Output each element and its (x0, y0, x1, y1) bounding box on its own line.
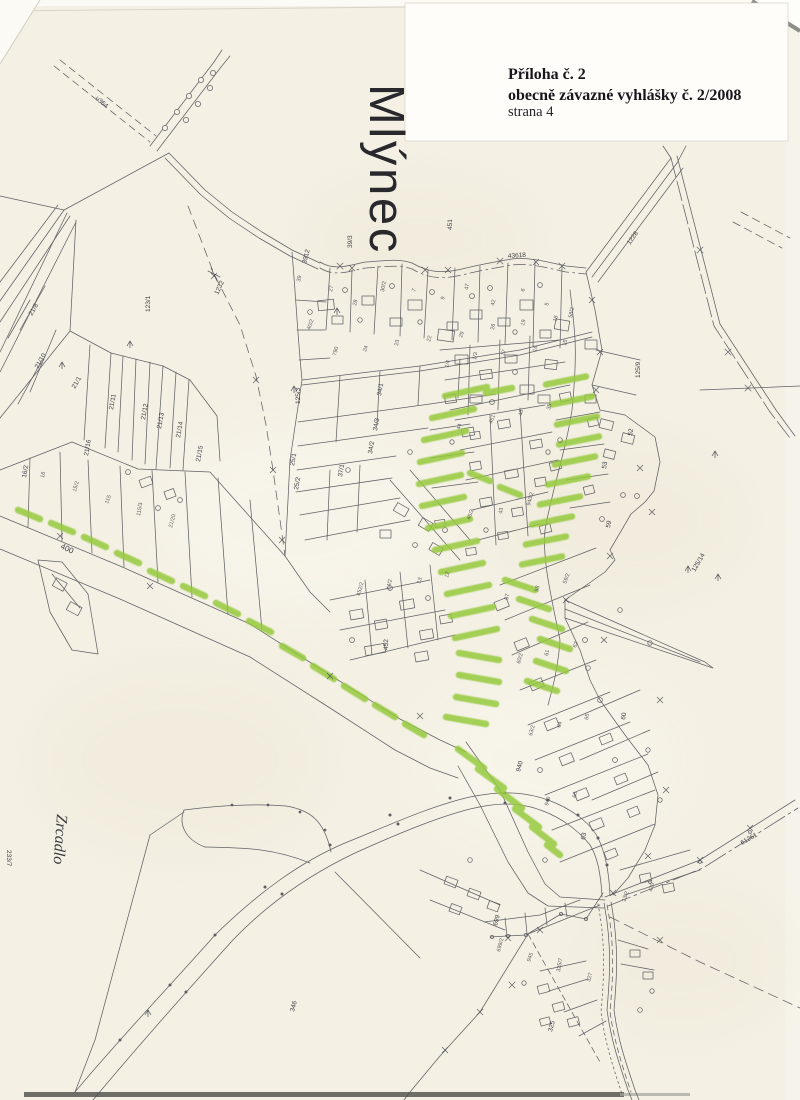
svg-text:26: 26 (490, 323, 497, 330)
svg-text:233/7: 233/7 (5, 850, 12, 867)
svg-text:57: 57 (504, 593, 511, 600)
svg-text:Příloha č. 2: Příloha č. 2 (508, 66, 586, 83)
svg-text:16: 16 (40, 471, 47, 478)
svg-text:strana 4: strana 4 (508, 104, 554, 120)
svg-text:23: 23 (394, 339, 401, 346)
svg-text:39/3: 39/3 (347, 235, 354, 248)
svg-text:Mlýnec: Mlýnec (359, 84, 413, 255)
svg-text:451: 451 (447, 219, 454, 230)
svg-text:Zrcadlo: Zrcadlo (50, 814, 70, 865)
svg-text:43618: 43618 (508, 252, 527, 260)
svg-text:61: 61 (544, 649, 551, 656)
svg-text:47: 47 (464, 283, 471, 290)
svg-text:452: 452 (383, 639, 390, 650)
svg-text:43: 43 (498, 507, 505, 514)
svg-text:66: 66 (572, 791, 579, 798)
svg-text:125/9: 125/9 (635, 361, 642, 378)
svg-text:46: 46 (518, 409, 525, 416)
svg-text:65: 65 (584, 713, 591, 720)
svg-text:123/1: 123/1 (145, 295, 152, 312)
svg-text:15: 15 (562, 339, 569, 346)
svg-text:obecně závazné vyhlášky č. 2/2: obecně závazné vyhlášky č. 2/2008 (508, 87, 741, 104)
